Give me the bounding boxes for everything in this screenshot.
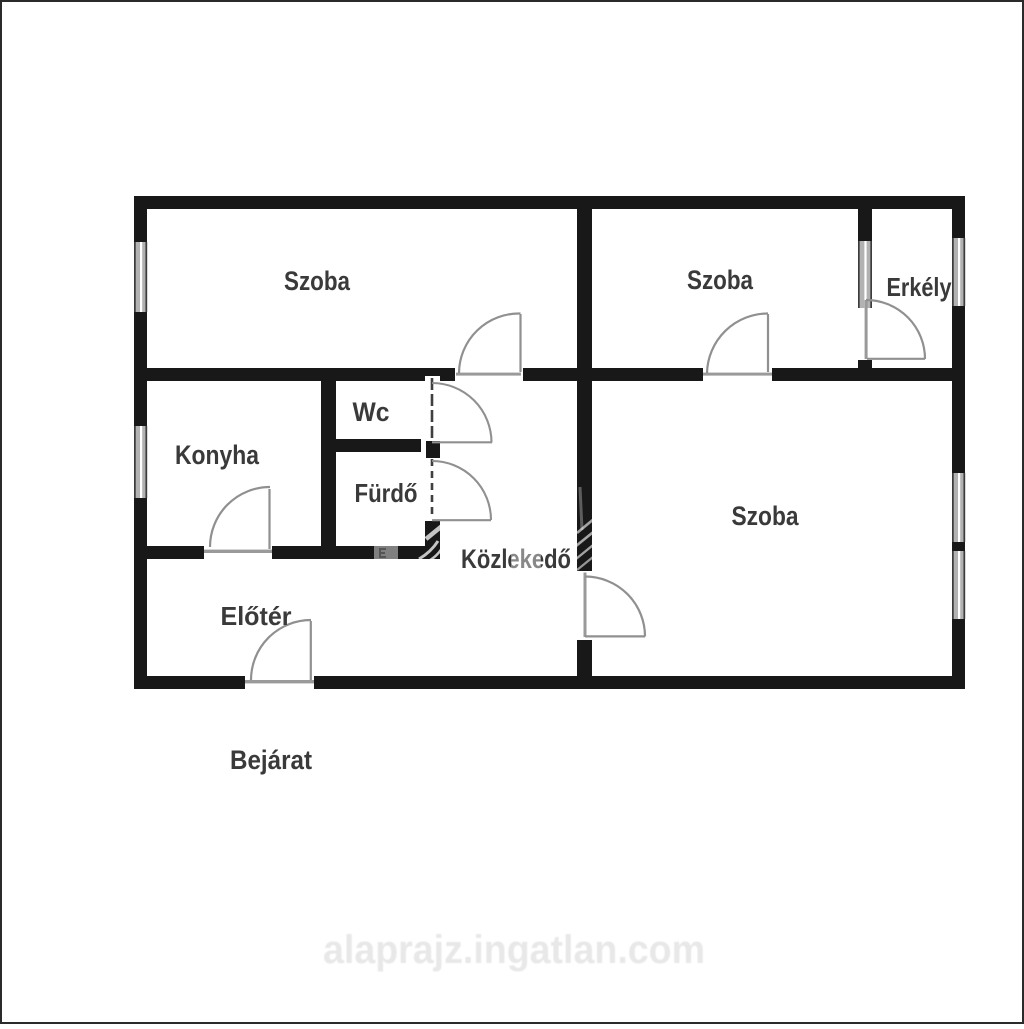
- svg-text:Szoba: Szoba: [687, 265, 754, 295]
- svg-text:Erkély: Erkély: [887, 272, 952, 302]
- svg-text:Wc: Wc: [353, 397, 390, 427]
- svg-text:Fürdő: Fürdő: [355, 478, 418, 508]
- svg-text:Szoba: Szoba: [284, 266, 351, 296]
- svg-text:alaprajz.ingatlan.com: alaprajz.ingatlan.com: [323, 928, 705, 972]
- svg-text:Bejárat: Bejárat: [230, 745, 312, 775]
- svg-text:Konyha: Konyha: [175, 440, 260, 470]
- svg-text:Szoba: Szoba: [732, 501, 800, 531]
- svg-text:Előtér: Előtér: [221, 601, 292, 631]
